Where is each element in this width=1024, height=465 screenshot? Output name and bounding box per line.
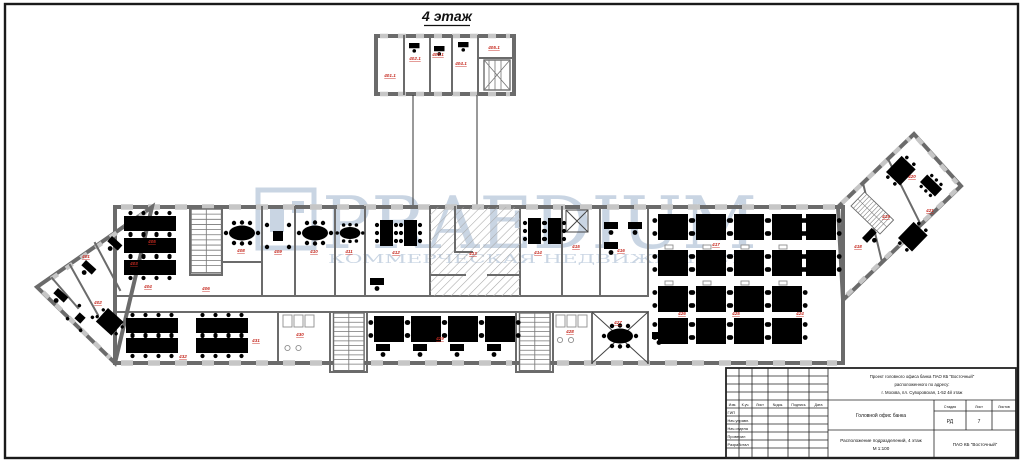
title-block: Изм. К.уч. Лист №док. Подпись Дата ГИП Н… [726, 368, 1016, 458]
praedium-logo-icon [258, 190, 314, 248]
rev-header: Подпись [791, 403, 805, 407]
floor-plan-drawing: PRAEDIUM КОММЕРЧЕСКАЯ НЕДВИЖИМОСТЬ 4 эта… [0, 0, 1024, 465]
room-number-label: 412 [391, 250, 400, 255]
sign-row-label: Нач.управл. [728, 418, 750, 423]
rev-header: Лист [756, 403, 764, 407]
sign-row-label: ГИП [728, 410, 736, 415]
room-number-label: 406 [201, 286, 210, 291]
room-number-label: 401.1 [383, 73, 396, 78]
room-number-label: 421 [925, 208, 934, 213]
room-number-label: 417 [711, 242, 720, 247]
room-number-label: 404 [143, 284, 152, 289]
fragment-staircase [484, 60, 510, 90]
stage-sheet-grid: Стадия Лист Листов РД 7 [944, 405, 1010, 425]
room-number-label: 408 [236, 248, 245, 253]
main-floor-plan [37, 134, 961, 372]
sheet-value: 7 [978, 419, 981, 425]
project-name-line3: г. Москва, пл. Суворовская, 1-52 4й этаж [882, 390, 963, 395]
sheet-name-line1: Расположение подразделений, 4 этаж [840, 437, 922, 443]
rev-header: Изм. [729, 403, 737, 407]
project-name-line1: Проект головного офиса банка ПАО КБ "Вос… [870, 374, 975, 379]
project-name-line2: расположенного по адресу: [895, 382, 950, 387]
floor-title-text: 4 этаж [421, 8, 473, 24]
room-number-label: 430 [295, 332, 304, 337]
room-number-label: 420 [907, 174, 916, 179]
rev-header: Дата [815, 403, 823, 407]
sign-row-label: Нач.отдела [728, 426, 749, 431]
room-number-label: 411 [344, 249, 353, 254]
sign-row-label: Разработал [728, 442, 749, 447]
room-number-label: 426 [677, 311, 686, 316]
right-wing [838, 134, 961, 300]
drawing-sheet: PRAEDIUM КОММЕРЧЕСКАЯ НЕДВИЖИМОСТЬ 4 эта… [0, 0, 1024, 465]
sheet-name-line2: М 1:100 [873, 446, 890, 451]
room-number-label: 404.1 [454, 61, 467, 66]
room-number-label: 410 [309, 249, 318, 254]
stage-value: РД [947, 419, 954, 425]
staircase-top-left [191, 209, 222, 273]
revision-header-row: Изм. К.уч. Лист №док. Подпись Дата [729, 403, 823, 407]
rev-header: К.уч. [742, 403, 750, 407]
sign-row-label: Проверил [728, 434, 746, 439]
room-number-label: 414 [533, 250, 542, 255]
room-number-label: 405 [147, 239, 156, 244]
room-number-label: 402 [93, 300, 102, 305]
room-number-label: 427 [613, 320, 622, 325]
room-number-label: 401 [81, 254, 90, 259]
room-number-label: 413 [468, 251, 477, 256]
right-wing-staircase [851, 192, 894, 234]
room-number-label: 424 [795, 311, 804, 316]
rev-header: №док. [773, 403, 784, 407]
staircase-bottom-b [520, 313, 551, 371]
sheet-name-cell: Расположение подразделений, 4 этаж М 1:1… [840, 437, 922, 451]
company-cell: ПАО КБ "Восточный" [953, 441, 998, 447]
room-number-label: 415 [571, 244, 580, 249]
sheets-header: Листов [998, 405, 1010, 409]
project-name-cell: Проект головного офиса банка ПАО КБ "Вос… [870, 374, 975, 395]
room-number-label: 416 [616, 248, 625, 253]
floor-title: 4 этаж [421, 8, 473, 26]
object-name-cell: Головной офис банка [856, 412, 906, 419]
sheet-header: Лист [975, 405, 983, 409]
corridor-walls [115, 296, 648, 312]
room-number-label: 409 [273, 249, 282, 254]
open-office-right-desks [652, 214, 841, 344]
open-office-left-desks [124, 211, 176, 280]
room-number-label: 431 [251, 338, 260, 343]
room-number-label: 402.1 [408, 56, 421, 61]
room-number-label: 419 [881, 214, 890, 219]
room-number-label: 403.1 [431, 52, 444, 57]
room-number-label: 429 [435, 336, 444, 341]
room-number-label: 432 [178, 354, 187, 359]
room-number-label: 403 [129, 261, 138, 266]
room-number-label: 405.1 [487, 45, 500, 50]
room-number-label: 425 [731, 311, 740, 316]
room-number-label: 418 [853, 244, 862, 249]
stage-header: Стадия [944, 405, 956, 409]
staircase-bottom-a [334, 313, 365, 371]
room-number-label: 428 [565, 329, 574, 334]
